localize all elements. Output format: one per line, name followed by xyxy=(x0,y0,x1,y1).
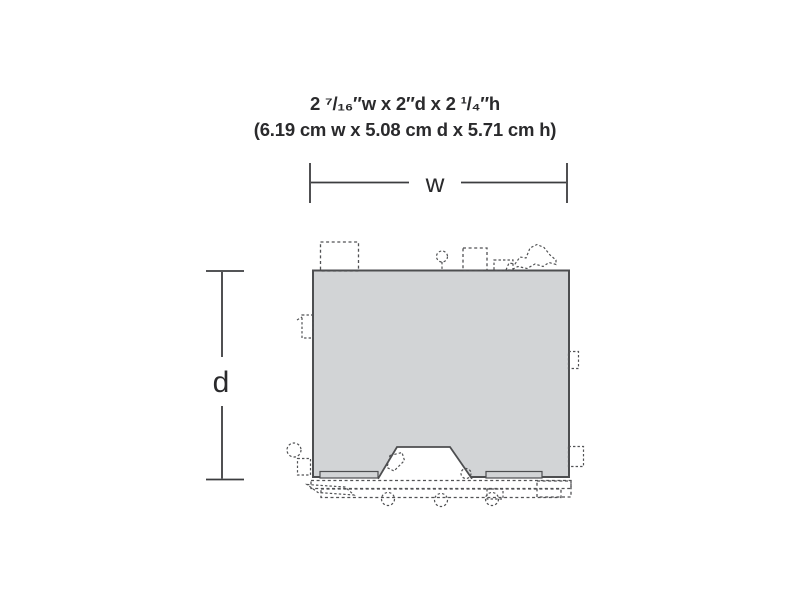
ground-barrel-detail-1 xyxy=(382,493,395,506)
rooftop-crate-detail xyxy=(494,260,513,271)
rooftop-figure-detail xyxy=(506,245,556,271)
width-dim-label: w xyxy=(425,168,445,198)
vent-pipe-cap-detail xyxy=(437,251,448,262)
left-wall-ladder-detail xyxy=(302,315,313,338)
platform-strip-lower xyxy=(321,489,561,498)
chimney-box-detail xyxy=(463,248,487,271)
rooftop-details xyxy=(321,242,557,271)
platform-plank-detail xyxy=(307,485,354,496)
bottom-edge-slot-right xyxy=(486,472,542,479)
ground-barrel-detail-2 xyxy=(435,494,448,507)
right-wall-box-detail-lower xyxy=(569,447,584,467)
bottom-edge-slot-left xyxy=(320,472,378,479)
depth-dimension: d xyxy=(206,271,244,480)
barrel-detail-left xyxy=(287,443,301,457)
left-wall-tick-detail xyxy=(297,317,302,320)
platform-strip-upper xyxy=(311,481,571,489)
depth-dim-label: d xyxy=(213,366,230,399)
footprint-diagram: w d xyxy=(0,0,800,600)
crate-detail-left xyxy=(298,459,311,476)
footprint-diagram-page: 2 ⁷/₁₆″w x 2″d x 2 ¹/₄″h (6.19 cm w x 5.… xyxy=(0,0,800,600)
building-footprint xyxy=(313,271,569,479)
footprint-body xyxy=(313,271,569,478)
rooftop-box-detail xyxy=(321,242,359,271)
width-dimension: w xyxy=(310,163,567,203)
